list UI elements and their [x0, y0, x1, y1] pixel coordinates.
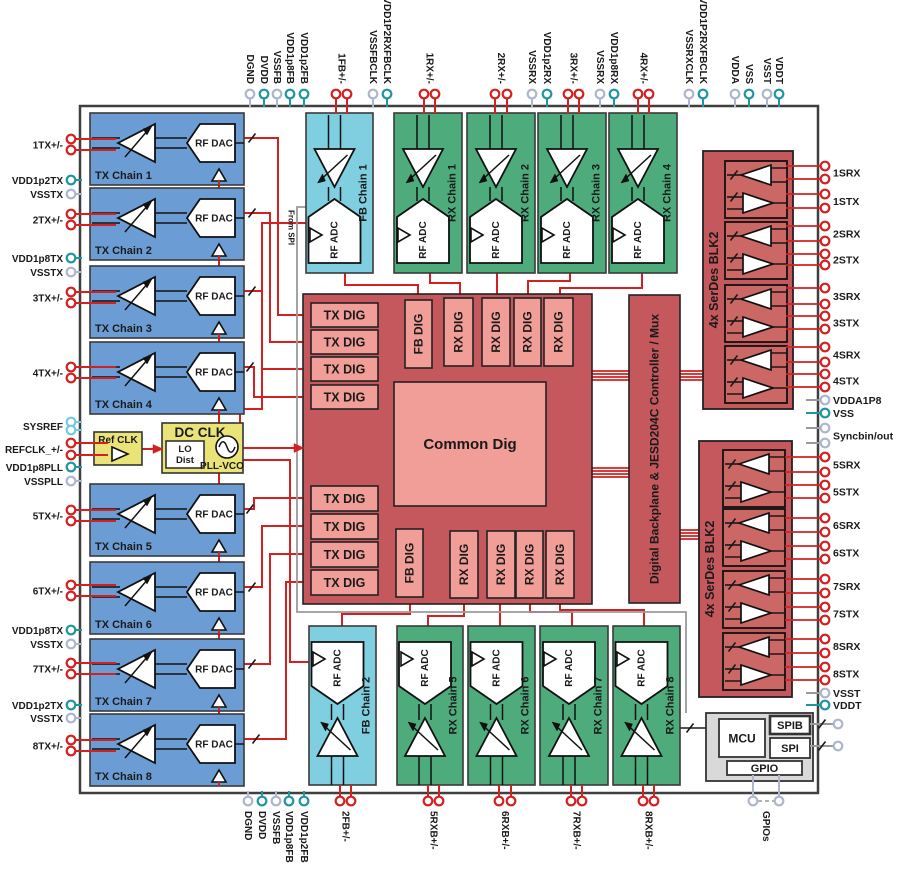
pin-circle: [383, 90, 392, 99]
pin-4stx-label: 4STX: [833, 375, 859, 387]
wire-tx6-out: [244, 526, 311, 587]
gpio-label: GPIO: [751, 763, 779, 775]
pll-vco-label: PLL-VCO: [200, 461, 244, 472]
chain-label: RX Chain 8: [665, 676, 677, 734]
pin-5rxb--label: 5RXB+/-: [427, 811, 438, 850]
pin-circle: [821, 453, 830, 462]
pin-circle: [821, 439, 830, 448]
pin-circle: [343, 90, 352, 99]
pin-circle: [821, 603, 830, 612]
pin-circle: [821, 589, 830, 598]
pin-vdd1p8rx-label: VDD1p8RX: [608, 32, 619, 85]
pin-6rxb--label: 6RXB+/-: [499, 811, 510, 850]
pin-circle: [67, 451, 76, 460]
pin-circle: [775, 90, 784, 99]
rf-dac-label: RF DAC: [195, 214, 233, 225]
rf-dac-label: RF DAC: [195, 292, 233, 303]
pin-circle: [67, 210, 76, 219]
pin-vdda1p8-label: VDDA1P8: [833, 395, 882, 407]
pin-1tx--label: 1TX+/-: [33, 140, 63, 151]
pin-circle: [821, 222, 830, 231]
dig-label: RX DIG: [522, 544, 536, 585]
pin-circle: [67, 221, 76, 230]
pin-vddt-label: VDDT: [833, 700, 862, 712]
pin-8tx--label: 8TX+/-: [33, 741, 63, 752]
dig-label: TX DIG: [324, 336, 366, 350]
pin-vdd1p8tx-label: VDD1p8TX: [12, 626, 63, 637]
pin-circle: [67, 146, 76, 155]
rf-adc-label: RF ADC: [418, 221, 429, 258]
pin-circle: [336, 797, 345, 806]
pin-circle: [821, 343, 830, 352]
pin-vdd1p8fb-label: VDD1p8FB: [284, 32, 295, 84]
wire-tx7-out: [244, 554, 311, 664]
pin-vsstx-label: VSSTX: [30, 714, 63, 725]
dig-label: FB DIG: [402, 543, 416, 584]
chain-label: RX Chain 7: [593, 676, 605, 734]
pin-5stx-label: 5STX: [833, 486, 859, 498]
pin-circle: [575, 90, 584, 99]
pin-8stx-label: 8STX: [833, 668, 859, 680]
pin-circle: [67, 506, 76, 515]
pin-circle: [67, 640, 76, 649]
rf-adc-label: RF ADC: [564, 649, 575, 686]
pin-vdd1p2tx-label: VDD1p2TX: [12, 701, 63, 712]
serdes-label: 4x SerDes BLK2: [707, 232, 721, 329]
pin-circle: [821, 676, 830, 685]
pin-circle: [821, 663, 830, 672]
pin-vdda-label: VDDA: [729, 56, 740, 84]
dig-label: RX DIG: [457, 544, 471, 585]
tx-chain-label: TX Chain 5: [95, 541, 152, 553]
rf-adc-label: RF ADC: [562, 221, 573, 258]
pin-vdd1p8fb-label: VDD1p8FB: [283, 811, 294, 863]
pin-3srx-label: 3SRX: [833, 291, 860, 303]
pin-refclk--label: REFCLK_+/-: [5, 445, 63, 456]
pin-circle: [543, 90, 552, 99]
pin-8rxb--label: 8RXB+/-: [642, 811, 653, 850]
dig-label: TX DIG: [324, 520, 366, 534]
pin-circle: [685, 90, 694, 99]
pin-circle: [821, 204, 830, 213]
pin-circle: [731, 90, 740, 99]
pin-circle: [821, 284, 830, 293]
rf-adc-label: RF ADC: [492, 649, 503, 686]
pin-circle: [67, 426, 76, 435]
pin-8srx-label: 8SRX: [833, 641, 860, 653]
pin-circle: [424, 797, 433, 806]
pin-circle: [596, 90, 605, 99]
pin-vdd1p8pll-label: VDD1p8PLL: [6, 463, 63, 474]
pin-circle: [507, 797, 516, 806]
chain-label: RX Chain 2: [520, 164, 532, 222]
pin-circle: [821, 383, 830, 392]
chain-label: FB Chain 1: [358, 164, 370, 221]
pin-circle: [821, 409, 830, 418]
spib-label: SPIB: [777, 720, 803, 732]
pin-circle: [67, 747, 76, 756]
pin-vdd1p2tx-label: VDD1p2TX: [12, 176, 63, 187]
tx-chain-label: TX Chain 6: [95, 619, 152, 631]
pin-circle: [273, 90, 282, 99]
pin-circle: [67, 190, 76, 199]
pin-circle: [67, 670, 76, 679]
pin-circle: [763, 90, 772, 99]
pin-circle: [749, 797, 758, 806]
pin-vsst-label: VSST: [833, 688, 861, 700]
pin-circle: [821, 555, 830, 564]
pin-dgnd-label: DGND: [242, 811, 253, 840]
pin-circle: [821, 542, 830, 551]
pin-vss-label: VSS: [743, 64, 754, 84]
pin-4srx-label: 4SRX: [833, 349, 860, 361]
chain-label: FB Chain 2: [361, 677, 373, 734]
pin-vddt-label: VDDT: [773, 57, 784, 84]
pin-3stx-label: 3STX: [833, 317, 859, 329]
pin-vssfb-label: VSSFB: [271, 51, 282, 84]
pin-circle: [650, 797, 659, 806]
pin-6srx-label: 6SRX: [833, 520, 860, 532]
pin-circle: [286, 90, 295, 99]
pin-circle: [821, 190, 830, 199]
rf-dac-label: RF DAC: [195, 665, 233, 676]
backplane-label: Digital Backplane & JESD204C Controller …: [647, 314, 661, 584]
pin-6tx--label: 6TX+/-: [33, 586, 63, 597]
pin-circle: [821, 494, 830, 503]
pin-circle: [821, 396, 830, 405]
pin-5srx-label: 5SRX: [833, 459, 860, 471]
pin-circle: [639, 797, 648, 806]
pin-circle: [67, 439, 76, 448]
pin-7stx-label: 7STX: [833, 608, 859, 620]
pin-circle: [645, 90, 654, 99]
pin-circle: [821, 358, 830, 367]
pin-circle: [67, 254, 76, 263]
pin-circle: [285, 797, 294, 806]
dig-label: RX DIG: [553, 544, 567, 585]
pin-7tx--label: 7TX+/-: [33, 664, 63, 675]
pin-circle: [821, 481, 830, 490]
rf-dac-label: RF DAC: [195, 588, 233, 599]
pin-circle: [420, 90, 429, 99]
tx-chain-label: TX Chain 4: [95, 399, 153, 411]
pin-circle: [821, 514, 830, 523]
chain-label: RX Chain 5: [448, 676, 460, 734]
pin-circle: [258, 797, 267, 806]
pin-circle: [821, 370, 830, 379]
pin-circle: [821, 424, 830, 433]
pin-vdd1p2rx-label: VDD1p2RX: [541, 32, 552, 85]
pin-7srx-label: 7SRX: [833, 581, 860, 593]
pin-vsst-label: VSST: [761, 58, 772, 84]
pin-circle: [260, 90, 269, 99]
pin-circle: [300, 797, 309, 806]
pin-circle: [67, 701, 76, 710]
ref-clk-label: Ref CLK: [98, 435, 138, 446]
pin-vdd1p2fb-label: VDD1p2FB: [298, 811, 309, 863]
pin-circle: [347, 797, 356, 806]
pin-vsstx-label: VSSTX: [30, 190, 63, 201]
chain-label: RX Chain 1: [447, 164, 459, 222]
pin-1stx-label: 1STX: [833, 196, 859, 208]
pin-circle: [67, 176, 76, 185]
lo-dist-label: LO: [178, 444, 191, 455]
pin-vss-label: VSS: [833, 408, 854, 420]
dig-label: RX DIG: [494, 544, 508, 585]
pin-circle: [821, 250, 830, 259]
pin-circle: [67, 736, 76, 745]
pin-circle: [821, 689, 830, 698]
pin-circle: [821, 261, 830, 270]
pin-circle: [564, 90, 573, 99]
rf-dac-label: RF DAC: [195, 139, 233, 150]
pin-circle: [634, 90, 643, 99]
pin-circle: [67, 288, 76, 297]
dig-label: TX DIG: [324, 391, 366, 405]
dig-label: TX DIG: [324, 492, 366, 506]
dig-label: FB DIG: [411, 314, 425, 355]
pin-vssfbclk-label: VSSFBCLK: [367, 30, 378, 85]
pin-3rx--label: 3RX+/-: [567, 53, 578, 84]
tx-chain-label: TX Chain 3: [95, 323, 152, 335]
pin-circle: [67, 299, 76, 308]
rf-adc-label: RF ADC: [491, 221, 502, 258]
dig-label: TX DIG: [324, 309, 366, 323]
diagram-canvas: RF DACTX Chain 1RF DACTX Chain 2RF DACTX…: [0, 0, 900, 874]
pin-circle: [821, 300, 830, 309]
tx-chain-label: TX Chain 7: [95, 696, 152, 708]
rf-transceiver-block-diagram: RF DACTX Chain 1RF DACTX Chain 2RF DACTX…: [0, 0, 900, 874]
pin-circle: [67, 374, 76, 383]
pin-circle: [67, 135, 76, 144]
pin-circle: [821, 575, 830, 584]
pin-sysref-label: SYSREF: [23, 422, 63, 433]
pin-vssfb-label: VSSFB: [270, 811, 281, 844]
pin-circle: [821, 635, 830, 644]
dig-label: TX DIG: [324, 576, 366, 590]
pin-circle: [699, 90, 708, 99]
dig-label: RX DIG: [451, 311, 465, 352]
pin-circle: [300, 90, 309, 99]
pin-2stx-label: 2STX: [833, 254, 859, 266]
pin-3tx--label: 3TX+/-: [33, 293, 63, 304]
common-dig-label: Common Dig: [423, 436, 516, 453]
pin-circle: [821, 325, 830, 334]
dig-label: RX DIG: [551, 311, 565, 352]
pin-vssrx-label: VSSRX: [526, 50, 537, 84]
wire-clk-fb2: [243, 460, 309, 662]
pin-2srx-label: 2SRX: [833, 228, 860, 240]
rf-dac-label: RF DAC: [195, 510, 233, 521]
rf-adc-label: RF ADC: [637, 649, 648, 686]
pin-1fb--label: 1FB+/-: [335, 53, 346, 84]
pin-circle: [821, 701, 830, 710]
pin-5tx--label: 5TX+/-: [33, 511, 63, 522]
rf-dac-label: RF DAC: [195, 368, 233, 379]
pin-circle: [369, 90, 378, 99]
pin-circle: [775, 797, 784, 806]
pin-vsspll-label: VSSPLL: [24, 477, 63, 488]
serdes-label: 4x SerDes BLK2: [703, 521, 717, 618]
pin-vssrxclk-label: VSSRXCLK: [683, 30, 694, 85]
pin-circle: [834, 742, 843, 751]
pin-vdd1p2rxfbclk-label: VDD1P2RXFBCLK: [697, 0, 708, 85]
pin-circle: [67, 363, 76, 372]
dc-clk-label: DC CLK: [175, 425, 226, 440]
pin-circle: [244, 797, 253, 806]
mcu-label: MCU: [728, 732, 755, 746]
pin-1rx--label: 1RX+/-: [423, 53, 434, 84]
rf-dac-label: RF DAC: [195, 740, 233, 751]
chain-label: RX Chain 6: [520, 676, 532, 734]
dig-label: RX DIG: [489, 311, 503, 352]
pin-circle: [495, 797, 504, 806]
chain-label: RX Chain 4: [662, 163, 674, 222]
pin-circle: [821, 528, 830, 537]
pin-vdd1p8tx-label: VDD1p8TX: [12, 254, 63, 265]
pin-circle: [67, 517, 76, 526]
pin-circle: [821, 649, 830, 658]
pin-circle: [821, 616, 830, 625]
pin-circle: [834, 720, 843, 729]
dig-label: TX DIG: [324, 548, 366, 562]
pin-6stx-label: 6STX: [833, 547, 859, 559]
pin-circle: [67, 463, 76, 472]
pin-gpios-label: GPIOs: [760, 811, 771, 842]
pin-circle: [67, 581, 76, 590]
pin-circle: [431, 90, 440, 99]
rf-adc-label: RF ADC: [330, 221, 341, 258]
pin-circle: [610, 90, 619, 99]
pin-vssrx-label: VSSRX: [594, 50, 605, 84]
pin-vsstx-label: VSSTX: [30, 640, 63, 651]
pin-circle: [745, 90, 754, 99]
pin-2fb--label: 2FB+/-: [339, 811, 350, 842]
pin-circle: [246, 90, 255, 99]
rf-adc-label: RF ADC: [333, 649, 344, 686]
pin-circle: [67, 592, 76, 601]
pin-circle: [67, 477, 76, 486]
pin-2tx--label: 2TX+/-: [33, 215, 63, 226]
pin-circle: [821, 468, 830, 477]
pin-dvdd-label: DVDD: [258, 56, 269, 84]
tx-chain-label: TX Chain 2: [95, 245, 152, 257]
pin-circle: [67, 268, 76, 277]
pin-7rxb--label: 7RXB+/-: [570, 811, 581, 850]
pin-circle: [821, 237, 830, 246]
pin-circle: [332, 90, 341, 99]
pin-circle: [491, 90, 500, 99]
pin-dvdd-label: DVDD: [256, 811, 267, 839]
pin-circle: [821, 175, 830, 184]
pin-4rx--label: 4RX+/-: [637, 53, 648, 84]
pin-1srx-label: 1SRX: [833, 167, 860, 179]
spi-label: SPI: [781, 743, 799, 755]
pin-circle: [821, 162, 830, 171]
pin-circle: [67, 714, 76, 723]
pin-4tx--label: 4TX+/-: [33, 368, 63, 379]
pin-2rx--label: 2RX+/-: [495, 53, 506, 84]
pin-dgnd-label: DGND: [244, 55, 255, 84]
wire-tx4-out: [244, 367, 311, 397]
pin-vdd1p2fb-label: VDD1p2FB: [298, 32, 309, 84]
pin-circle: [67, 659, 76, 668]
pin-vsstx-label: VSSTX: [30, 268, 63, 279]
pin-circle: [503, 90, 512, 99]
pin-syncbin-out-label: Syncbin/out: [833, 430, 894, 442]
dig-label: TX DIG: [324, 363, 366, 377]
pin-circle: [567, 797, 576, 806]
pin-circle: [528, 90, 537, 99]
pin-circle: [272, 797, 281, 806]
tx-chain-label: TX Chain 8: [95, 771, 152, 783]
from-spi-label: From SPI: [286, 210, 295, 245]
pin-circle: [67, 626, 76, 635]
pin-circle: [578, 797, 587, 806]
dig-label: RX DIG: [520, 311, 534, 352]
wire-tx5-out: [244, 498, 311, 509]
pin-circle: [821, 312, 830, 321]
rf-adc-label: RF ADC: [633, 221, 644, 258]
pin-circle: [435, 797, 444, 806]
lo-dist-label: Dist: [176, 455, 195, 466]
chain-label: RX Chain 3: [591, 164, 603, 222]
rf-adc-label: RF ADC: [420, 649, 431, 686]
tx-chain-label: TX Chain 1: [95, 170, 152, 182]
pin-vdd1p2rxfbclk-label: VDD1P2RXFBCLK: [381, 0, 392, 85]
